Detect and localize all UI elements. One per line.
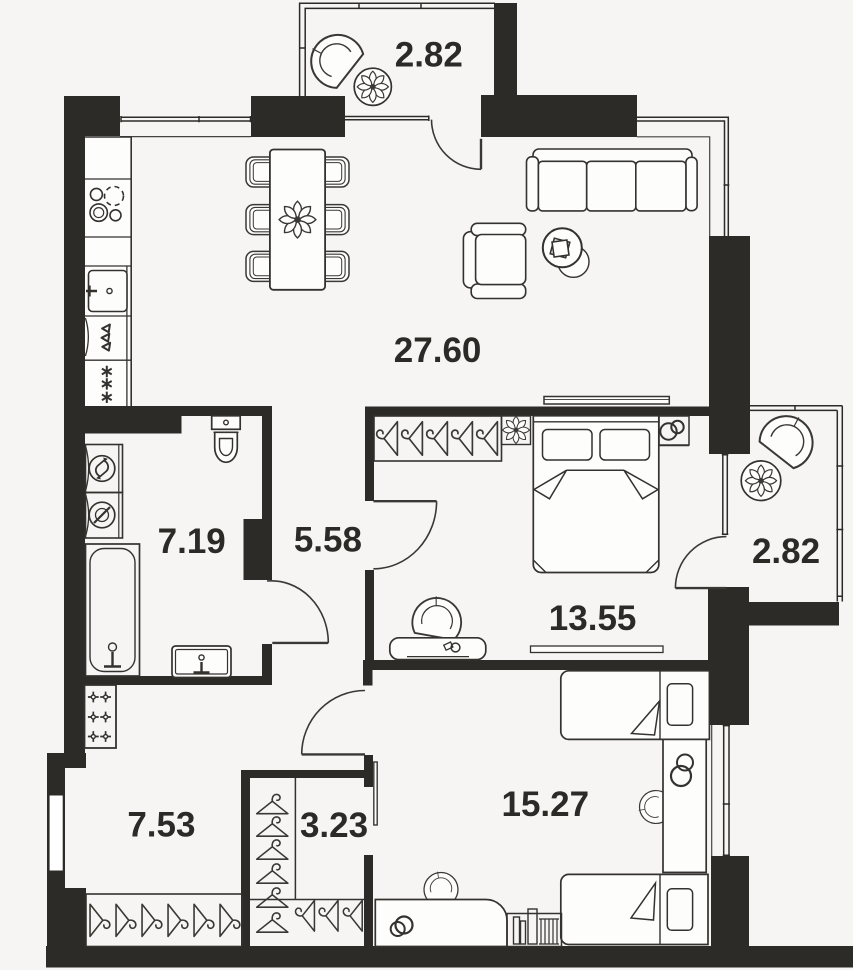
svg-text:15.27: 15.27 xyxy=(502,785,590,824)
svg-text:27.60: 27.60 xyxy=(394,331,482,370)
svg-text:5.58: 5.58 xyxy=(294,521,362,560)
svg-text:7.19: 7.19 xyxy=(158,522,226,561)
svg-text:3.23: 3.23 xyxy=(300,806,368,845)
svg-text:13.55: 13.55 xyxy=(549,599,637,638)
svg-text:2.82: 2.82 xyxy=(752,532,820,571)
svg-text:7.53: 7.53 xyxy=(127,806,195,845)
svg-text:2.82: 2.82 xyxy=(395,36,463,75)
